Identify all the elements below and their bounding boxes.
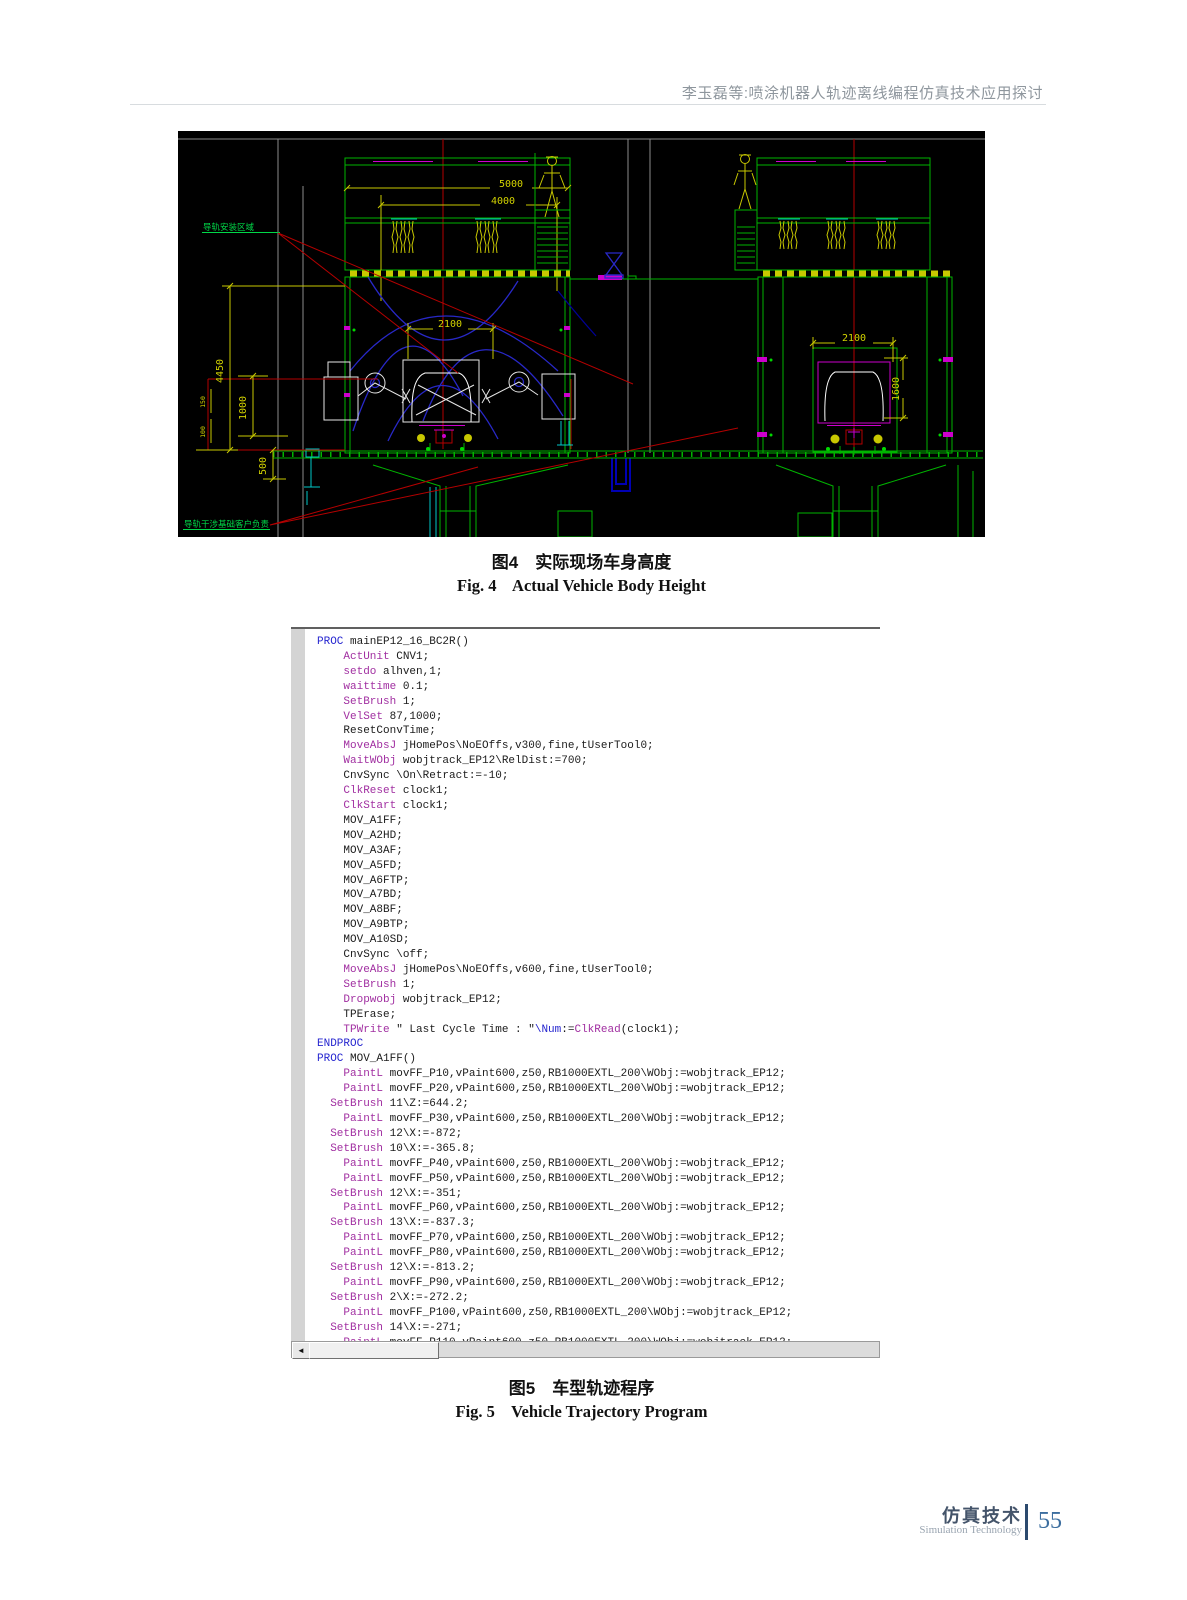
dim-500: 500 bbox=[258, 457, 269, 475]
cad-figure4: 5000 4000 bbox=[178, 131, 985, 537]
dim-1000: 1000 bbox=[238, 396, 249, 420]
dim-4450: 4450 bbox=[215, 359, 226, 383]
figure5-caption-en: Fig. 5 Vehicle Trajectory Program bbox=[178, 1402, 985, 1422]
dim-4000: 4000 bbox=[491, 196, 515, 207]
code-lines[interactable]: PROC mainEP12_16_BC2R() ActUnit CNV1; se… bbox=[305, 629, 880, 1341]
dim-5000: 5000 bbox=[499, 179, 523, 190]
figure4-caption-en: Fig. 4 Actual Vehicle Body Height bbox=[178, 576, 985, 596]
header-rule bbox=[130, 104, 1046, 105]
dim-2100-right: 2100 bbox=[842, 333, 866, 344]
scrollbar-thumb[interactable] bbox=[309, 1342, 439, 1359]
figure4-cad-drawing: 5000 4000 bbox=[178, 131, 985, 537]
dim-2100-left: 2100 bbox=[438, 319, 462, 330]
code-gutter bbox=[291, 629, 305, 1341]
page-footer: 仿真技术 Simulation Technology 55 bbox=[870, 1502, 1070, 1562]
dim-100: 100 bbox=[199, 426, 207, 438]
note-rail-interference: 导轨干涉基础客户负责 bbox=[184, 519, 270, 530]
figure5-caption-zh: 图5 车型轨迹程序 bbox=[178, 1374, 985, 1399]
figure5-code-window: PROC mainEP12_16_BC2R() ActUnit CNV1; se… bbox=[291, 627, 880, 1358]
running-title: 李玉磊等:喷涂机器人轨迹离线编程仿真技术应用探讨 bbox=[130, 82, 1043, 103]
figure4-caption-zh: 图4 实际现场车身高度 bbox=[178, 548, 985, 573]
dim-1600: 1600 bbox=[891, 377, 902, 401]
dim-150: 150 bbox=[199, 396, 207, 408]
note-rail-install-area: 导轨安装区域 bbox=[203, 222, 255, 233]
page-number: 55 bbox=[1038, 1508, 1062, 1535]
horizontal-scrollbar[interactable]: ◄ bbox=[291, 1341, 880, 1358]
scroll-left-button[interactable]: ◄ bbox=[292, 1342, 310, 1359]
journal-section-en: Simulation Technology bbox=[919, 1524, 1022, 1536]
footer-divider-bar bbox=[1025, 1504, 1028, 1540]
